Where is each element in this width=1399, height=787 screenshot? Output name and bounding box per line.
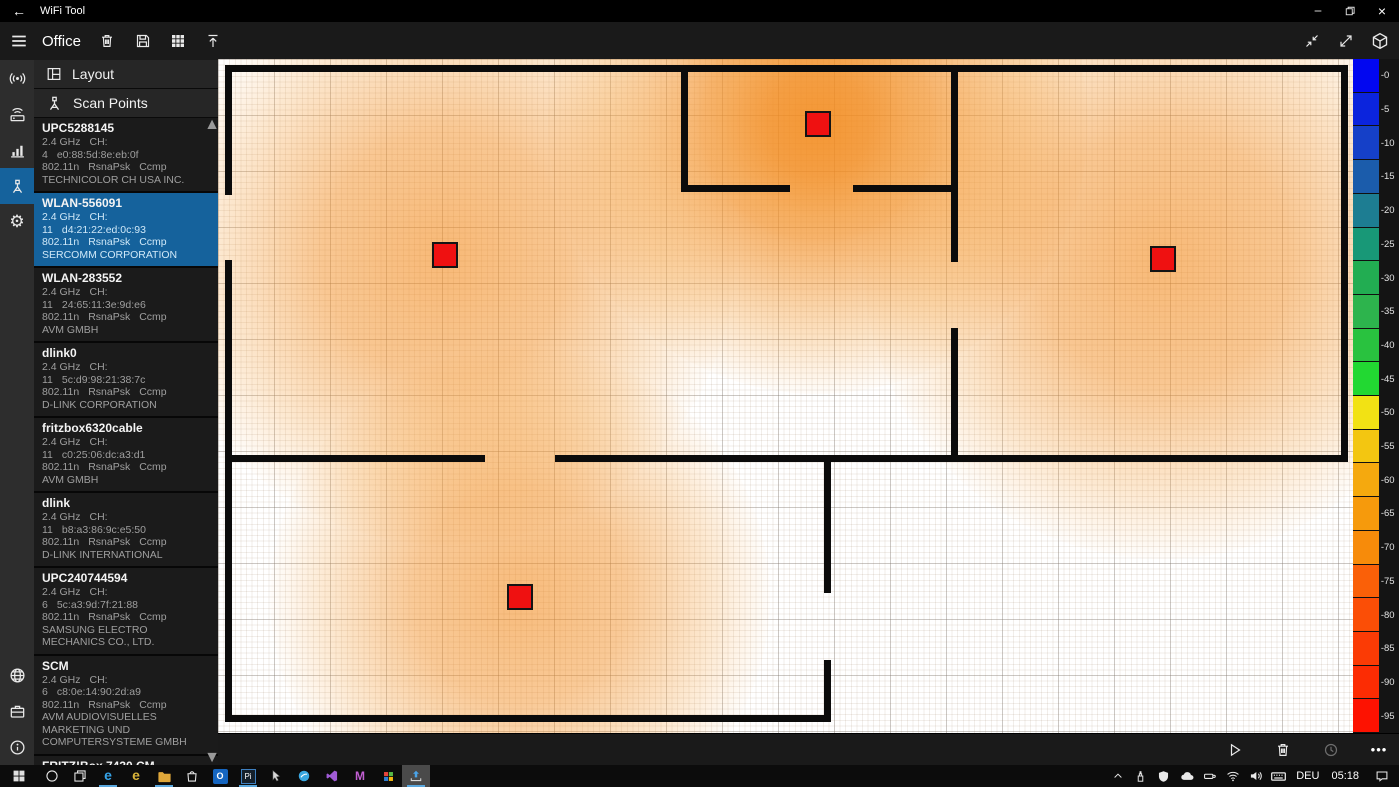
scan-point-marker[interactable] [432,242,458,268]
minimize-button[interactable] [1301,0,1335,22]
window-title: WiFi Tool [40,0,85,22]
network-vendor: SAMSUNG ELECTRO MECHANICS CO., LTD. [42,624,206,649]
legend-color-cell [1353,666,1379,700]
file-explorer-app[interactable] [150,765,178,787]
legend-label: -80 [1379,598,1399,632]
legend-label: -70 [1379,531,1399,565]
network-security: 802.11nRsnaPskCcmp [42,311,206,324]
nav-rail: ⚙ [0,60,34,765]
legend-label: -20 [1379,194,1399,228]
legend-color-cell [1353,362,1379,396]
network-ssid: dlink0 [42,346,206,361]
paint-icon [297,769,311,783]
windows-taskbar: eeOPiMDEU05:18 [0,765,1399,787]
tray-volume-icon[interactable] [1244,765,1267,787]
network-security: 802.11nRsnaPskCcmp [42,536,206,549]
language-indicator[interactable]: DEU [1290,765,1325,787]
network-band-channel-mac: 2.4 GHzCH: 11c0:25:06:dc:a3:d1 [42,436,206,461]
sidebar-item-settings[interactable]: ⚙ [0,204,34,240]
visual-studio-app[interactable] [318,765,346,787]
app-toolbar: Office [0,22,1399,60]
pi-app[interactable]: Pi [234,765,262,787]
network-band-channel-mac: 2.4 GHzCH: 4e0:88:5d:8e:eb:0f [42,136,206,161]
floorplan-wall [225,65,232,195]
network-vendor: TECHNICOLOR CH USA INC. [42,174,206,187]
action-center-icon[interactable] [1365,765,1399,787]
floorplan-wall [824,660,831,722]
network-band-channel-mac: 2.4 GHzCH: 115c:d9:98:21:38:7c [42,361,206,386]
mixer-app[interactable]: M [346,765,374,787]
legend-color-cell [1353,463,1379,497]
sidebar-item-apps[interactable] [0,693,34,729]
gear-icon: ⚙ [9,213,24,232]
tray-wifi-icon[interactable] [1221,765,1244,787]
floorplan-wall [225,715,831,722]
sidebar-item-about[interactable] [0,729,34,765]
scroll-down-icon[interactable]: ▼ [207,753,217,763]
collapse-icon[interactable] [1295,22,1329,60]
network-ssid: SCM [42,659,206,674]
network-security: 802.11nRsnaPskCcmp [42,161,206,174]
network-list-item[interactable]: dlink02.4 GHzCH: 115c:d9:98:21:38:7c802.… [34,343,218,418]
legend-row: -70 [1353,531,1399,565]
floorplan-wall [853,185,958,192]
sidebar-item-access-points[interactable] [0,60,34,96]
network-ssid: UPC5288145 [42,121,206,136]
network-list-item[interactable]: WLAN-5560912.4 GHzCH: 11d4:21:22:ed:0c:9… [34,193,218,268]
network-security: 802.11nRsnaPskCcmp [42,461,206,474]
legend-row: -90 [1353,666,1399,700]
upload-icon[interactable] [196,22,230,60]
paint-app[interactable] [290,765,318,787]
layout-section-header[interactable]: Layout [34,60,218,89]
legend-color-cell [1353,531,1379,565]
legend-label: -75 [1379,565,1399,599]
legend-row: -85 [1353,632,1399,666]
legend-color-cell [1353,699,1379,733]
heat-spot [218,59,735,545]
close-button[interactable]: × [1365,0,1399,22]
legend-row: -0 [1353,59,1399,93]
legend-label: -25 [1379,228,1399,262]
floorplan-wall [681,185,790,192]
network-vendor: AVM GMBH [42,474,206,487]
floorplan-wall [225,455,485,462]
floorplan-wall [951,65,958,262]
taskview-icon [73,769,87,783]
clock[interactable]: 05:18 [1325,765,1365,787]
legend-label: -95 [1379,699,1399,733]
network-list-item[interactable]: UPC52881452.4 GHzCH: 4e0:88:5d:8e:eb:0f8… [34,118,218,193]
network-band-channel-mac: 2.4 GHzCH: 11d4:21:22:ed:0c:93 [42,211,206,236]
network-security: 802.11nRsnaPskCcmp [42,236,206,249]
expand-icon[interactable] [1329,22,1363,60]
heat-spot [548,59,1088,394]
store-app[interactable] [178,765,206,787]
tray-plug-icon[interactable] [1198,765,1221,787]
delete-button[interactable] [1267,734,1299,766]
scan-points-label: Scan Points [73,95,148,111]
tiles-icon [382,770,395,783]
info-icon [9,739,26,756]
heat-spot [863,59,1353,559]
router-icon [9,106,26,123]
grid-view-icon[interactable] [161,22,195,60]
network-vendor: AVM GMBH [42,324,206,337]
wifi-tool-app[interactable] [402,765,430,787]
legend-label: -40 [1379,329,1399,363]
project-name[interactable]: Office [42,22,81,60]
network-ssid: dlink [42,496,206,511]
briefcase-icon [9,703,26,720]
internet-explorer-app[interactable]: e [122,765,150,787]
network-list-item[interactable]: WLAN-2835522.4 GHzCH: 1124:65:11:3e:9d:e… [34,268,218,343]
network-vendor: D-LINK CORPORATION [42,399,206,412]
network-list-item[interactable]: SCM2.4 GHzCH: 6c8:0e:14:90:2d:a9802.11nR… [34,656,218,756]
legend-color-cell [1353,295,1379,329]
network-band-channel-mac: 2.4 GHzCH: 6c8:0e:14:90:2d:a9 [42,674,206,699]
sidebar-item-channels-chart[interactable] [0,132,34,168]
legend-color-cell [1353,59,1379,93]
legend-row: -50 [1353,396,1399,430]
network-security: 802.11nRsnaPskCcmp [42,611,206,624]
outlook-app[interactable]: O [206,765,234,787]
heat-spot [270,347,770,733]
legend-color-cell [1353,126,1379,160]
piapp-icon: Pi [241,769,256,784]
mglyph-icon: M [355,767,365,785]
legend-label: -45 [1379,362,1399,396]
legend-color-cell [1353,430,1379,464]
chart-icon [9,142,26,159]
cube-3d-icon[interactable] [1363,22,1397,60]
pointer-icon [269,769,283,783]
network-security: 802.11nRsnaPskCcmp [42,699,206,712]
legend-color-cell [1353,598,1379,632]
history-button [1315,734,1347,766]
bag-icon [185,769,199,783]
network-list-item[interactable]: FRITZ!Box 7430 CM2.4 GHzCH: 138:10:d5:6d… [34,756,218,766]
legend-label: -10 [1379,126,1399,160]
legend-row: -80 [1353,598,1399,632]
legend-color-cell [1353,194,1379,228]
globe-icon [9,667,26,684]
scan-point-marker[interactable] [507,584,533,610]
sidebar-item-web[interactable] [0,657,34,693]
scroll-up-icon[interactable]: ▲ [207,120,217,130]
trash-icon[interactable] [90,22,124,60]
layout-icon [46,66,62,82]
network-list-item[interactable]: fritzbox6320cable2.4 GHzCH: 11c0:25:06:d… [34,418,218,493]
sidebar-item-scan-points[interactable] [0,168,34,204]
legend-row: -45 [1353,362,1399,396]
legend-row: -65 [1353,497,1399,531]
legend-row: -55 [1353,430,1399,464]
legend-row: -30 [1353,261,1399,295]
start-icon [12,769,26,783]
floorplan-wall [951,328,958,462]
network-list-item[interactable]: UPC2407445942.4 GHzCH: 65c:a3:9d:7f:21:8… [34,568,218,656]
legend-label: -0 [1379,59,1399,93]
legend-label: -85 [1379,632,1399,666]
start-button[interactable] [0,765,38,787]
scanpoint-icon [9,178,26,195]
legend-label: -5 [1379,93,1399,127]
command-bar: ••• [218,733,1399,765]
tray-chevron-up-icon[interactable] [1106,765,1129,787]
network-list[interactable]: UPC52881452.4 GHzCH: 4e0:88:5d:8e:eb:0f8… [34,118,218,765]
legend-row: -10 [1353,126,1399,160]
side-panel: Layout Scan Points UPC52881452.4 GHzCH: … [34,60,218,765]
scan-points-icon [46,95,63,112]
network-ssid: fritzbox6320cable [42,421,206,436]
network-vendor: D-LINK INTERNATIONAL [42,549,206,562]
legend-label: -55 [1379,430,1399,464]
back-button[interactable]: ← [6,0,32,22]
pointer-app[interactable] [262,765,290,787]
floor-plan-canvas[interactable] [218,59,1353,733]
tray-keyboard-icon[interactable] [1267,765,1290,787]
legend-row: -5 [1353,93,1399,127]
network-band-channel-mac: 2.4 GHzCH: 65c:a3:9d:7f:21:88 [42,586,206,611]
legend-row: -20 [1353,194,1399,228]
network-ssid: WLAN-283552 [42,271,206,286]
title-bar: ← WiFi Tool × [0,0,1399,22]
scan-points-section-header[interactable]: Scan Points [34,89,218,118]
floorplan-wall [225,260,232,722]
legend-color-cell [1353,93,1379,127]
save-icon[interactable] [126,22,160,60]
legend-color-cell [1353,261,1379,295]
legend-row: -35 [1353,295,1399,329]
restore-button[interactable] [1333,0,1367,22]
floorplan-wall [225,65,1348,72]
legend-row: -15 [1353,160,1399,194]
broadcast-icon [9,70,26,87]
legend-label: -35 [1379,295,1399,329]
tiles-app[interactable] [374,765,402,787]
edge-app[interactable]: e [94,765,122,787]
legend-label: -65 [1379,497,1399,531]
signal-strength-legend: -0-5-10-15-20-25-30-35-40-45-50-55-60-65… [1353,59,1399,733]
network-vendor: SERCOMM CORPORATION [42,249,206,262]
network-list-item[interactable]: dlink2.4 GHzCH: 11b8:a3:86:9c:e5:50802.1… [34,493,218,568]
scan-point-marker[interactable] [805,111,831,137]
legend-label: -15 [1379,160,1399,194]
legend-color-cell [1353,632,1379,666]
edge-icon: e [104,767,112,785]
search-button[interactable] [38,765,66,787]
more-button[interactable]: ••• [1363,734,1395,766]
wifitool-icon [409,769,423,783]
search-icon [45,769,59,783]
layout-label: Layout [72,66,114,82]
legend-row: -40 [1353,329,1399,363]
legend-row: -60 [1353,463,1399,497]
floorplan-wall [681,65,688,192]
legend-color-cell [1353,396,1379,430]
legend-label: -60 [1379,463,1399,497]
folder-icon [157,769,172,784]
tray-usb-icon[interactable] [1129,765,1152,787]
legend-color-cell [1353,228,1379,262]
legend-color-cell [1353,329,1379,363]
hamburger-menu-button[interactable] [7,29,31,53]
scan-point-marker[interactable] [1150,246,1176,272]
legend-color-cell [1353,160,1379,194]
tray-shield-icon[interactable] [1152,765,1175,787]
floorplan-wall [824,455,831,593]
outlook-icon: O [213,769,228,784]
legend-label: -50 [1379,396,1399,430]
network-ssid: WLAN-556091 [42,196,206,211]
legend-row: -75 [1353,565,1399,599]
tray-cloud-icon[interactable] [1175,765,1198,787]
network-vendor: AVM AUDIOVISUELLES MARKETING UND COMPUTE… [42,711,206,749]
network-band-channel-mac: 2.4 GHzCH: 11b8:a3:86:9c:e5:50 [42,511,206,536]
legend-row: -95 [1353,699,1399,733]
legend-color-cell [1353,565,1379,599]
legend-color-cell [1353,497,1379,531]
ie-icon: e [132,767,140,785]
vsicon-icon [325,769,339,783]
floorplan-wall [1341,65,1348,462]
sidebar-item-router[interactable] [0,96,34,132]
legend-label: -90 [1379,666,1399,700]
task-view-button[interactable] [66,765,94,787]
play-button[interactable] [1219,734,1251,766]
legend-label: -30 [1379,261,1399,295]
heatmap-area: -0-5-10-15-20-25-30-35-40-45-50-55-60-65… [218,59,1399,733]
legend-row: -25 [1353,228,1399,262]
network-security: 802.11nRsnaPskCcmp [42,386,206,399]
heat-spot [698,59,938,244]
network-ssid: UPC240744594 [42,571,206,586]
network-band-channel-mac: 2.4 GHzCH: 1124:65:11:3e:9d:e6 [42,286,206,311]
